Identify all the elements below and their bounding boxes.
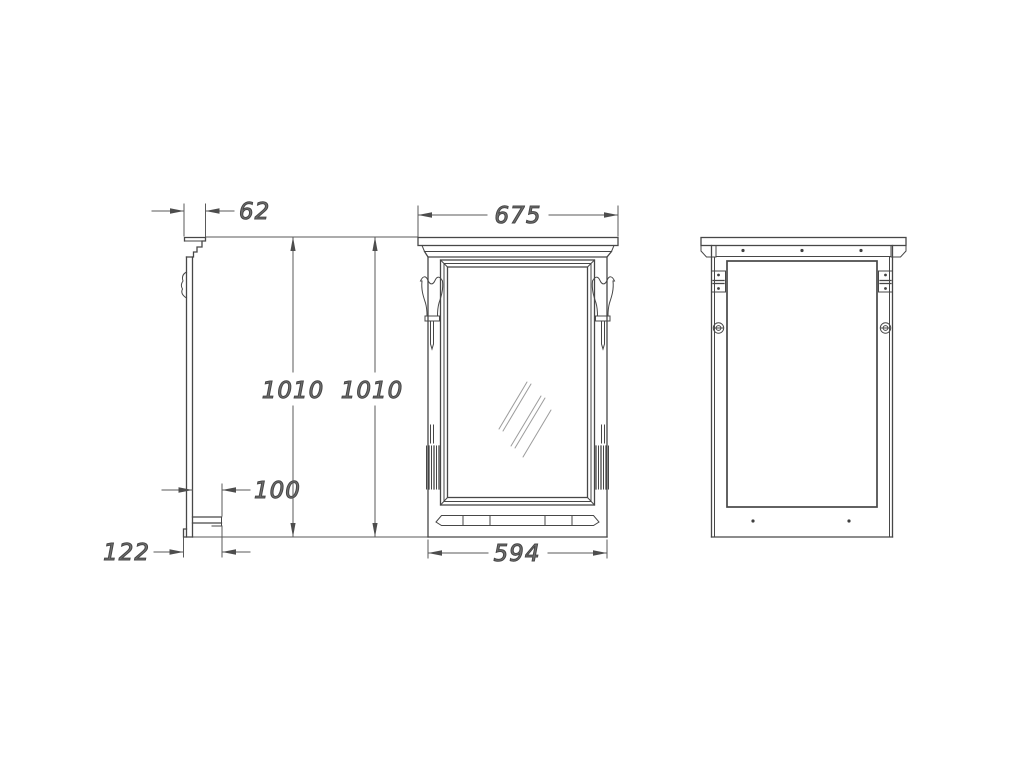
dim-label-1010-side: 1010 (262, 378, 325, 404)
side-cornice-profile (185, 238, 206, 258)
mirror-reflection-lines (499, 382, 551, 457)
front-shelf (436, 516, 599, 526)
dim-base-depth: 122 (103, 526, 250, 566)
front-cornice (418, 238, 618, 258)
dim-shelf-depth: 100 (162, 478, 301, 516)
back-left-hanger-bracket (712, 271, 726, 292)
back-right-cam-fitting (880, 323, 890, 333)
back-view (701, 238, 906, 538)
back-panel (727, 261, 877, 507)
back-cornice (701, 238, 906, 258)
dim-label-100: 100 (254, 478, 301, 504)
dim-label-1010-front: 1010 (341, 378, 404, 404)
side-shelf-profile (193, 517, 222, 526)
back-left-cam-fitting (713, 323, 723, 333)
mirror-frame (441, 260, 595, 505)
dim-label-122: 122 (103, 540, 150, 566)
dim-label-675: 675 (495, 203, 542, 229)
left-sconce (421, 277, 443, 349)
back-body (712, 246, 893, 538)
dim-body-width: 594 (428, 540, 607, 567)
dim-cornice-depth: 62 (152, 199, 270, 236)
dim-label-62: 62 (239, 199, 270, 225)
side-view: 62 100 122 1010 (103, 199, 324, 566)
right-sconce (592, 277, 614, 349)
technical-drawing: 62 100 122 1010 (0, 0, 1024, 768)
dim-label-594: 594 (494, 541, 541, 567)
dim-front-height: 1010 (341, 237, 404, 537)
drawing-canvas: 62 100 122 1010 (0, 0, 1024, 768)
back-right-hanger-bracket (879, 271, 893, 292)
dim-cornice-width: 675 (418, 203, 618, 236)
side-hanger-profile (181, 272, 186, 298)
side-bottom-block (184, 529, 193, 537)
front-view: 675 (341, 203, 618, 567)
back-bottom-screws (751, 519, 850, 522)
